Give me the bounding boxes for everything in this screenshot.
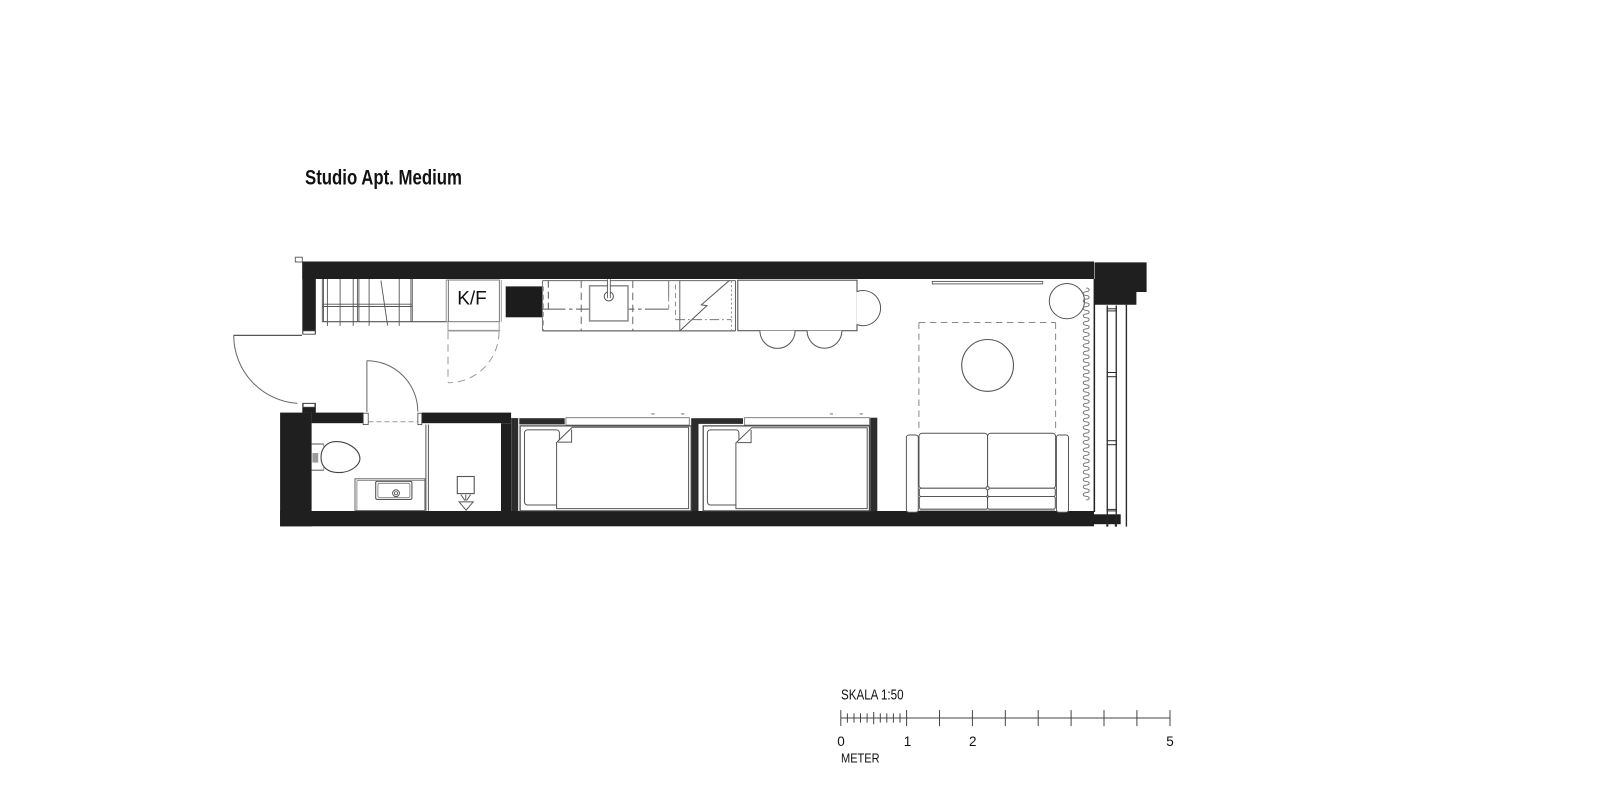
svg-text:5: 5 (1166, 734, 1174, 749)
svg-text:METER: METER (841, 750, 880, 765)
svg-text:2: 2 (969, 734, 977, 749)
svg-text:K/F: K/F (457, 289, 487, 310)
svg-text:SKALA 1:50: SKALA 1:50 (841, 686, 904, 703)
svg-text:0: 0 (837, 734, 845, 749)
svg-text:Studio Apt. Medium: Studio Apt. Medium (305, 167, 462, 190)
svg-text:1: 1 (904, 734, 912, 749)
